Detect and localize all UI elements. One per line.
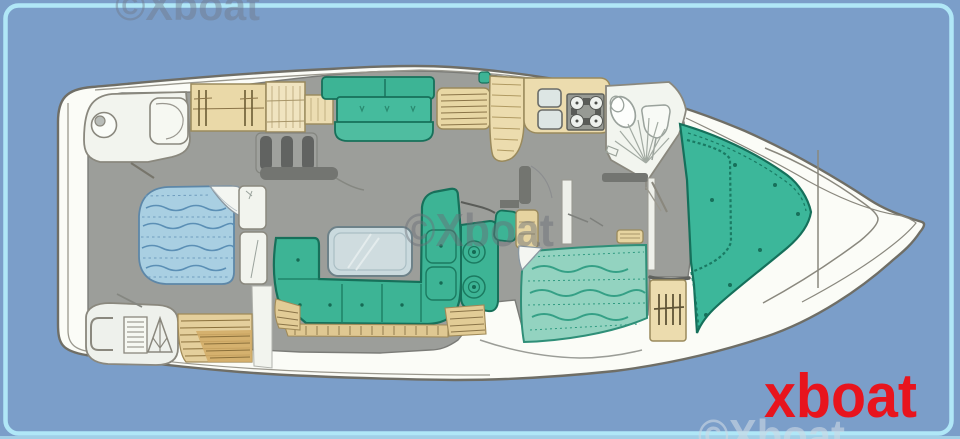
svg-text:©Xboat: ©Xboat bbox=[115, 0, 260, 29]
svg-text:©Xboat: ©Xboat bbox=[404, 204, 554, 256]
svg-text:©Xboat: ©Xboat bbox=[698, 410, 845, 439]
